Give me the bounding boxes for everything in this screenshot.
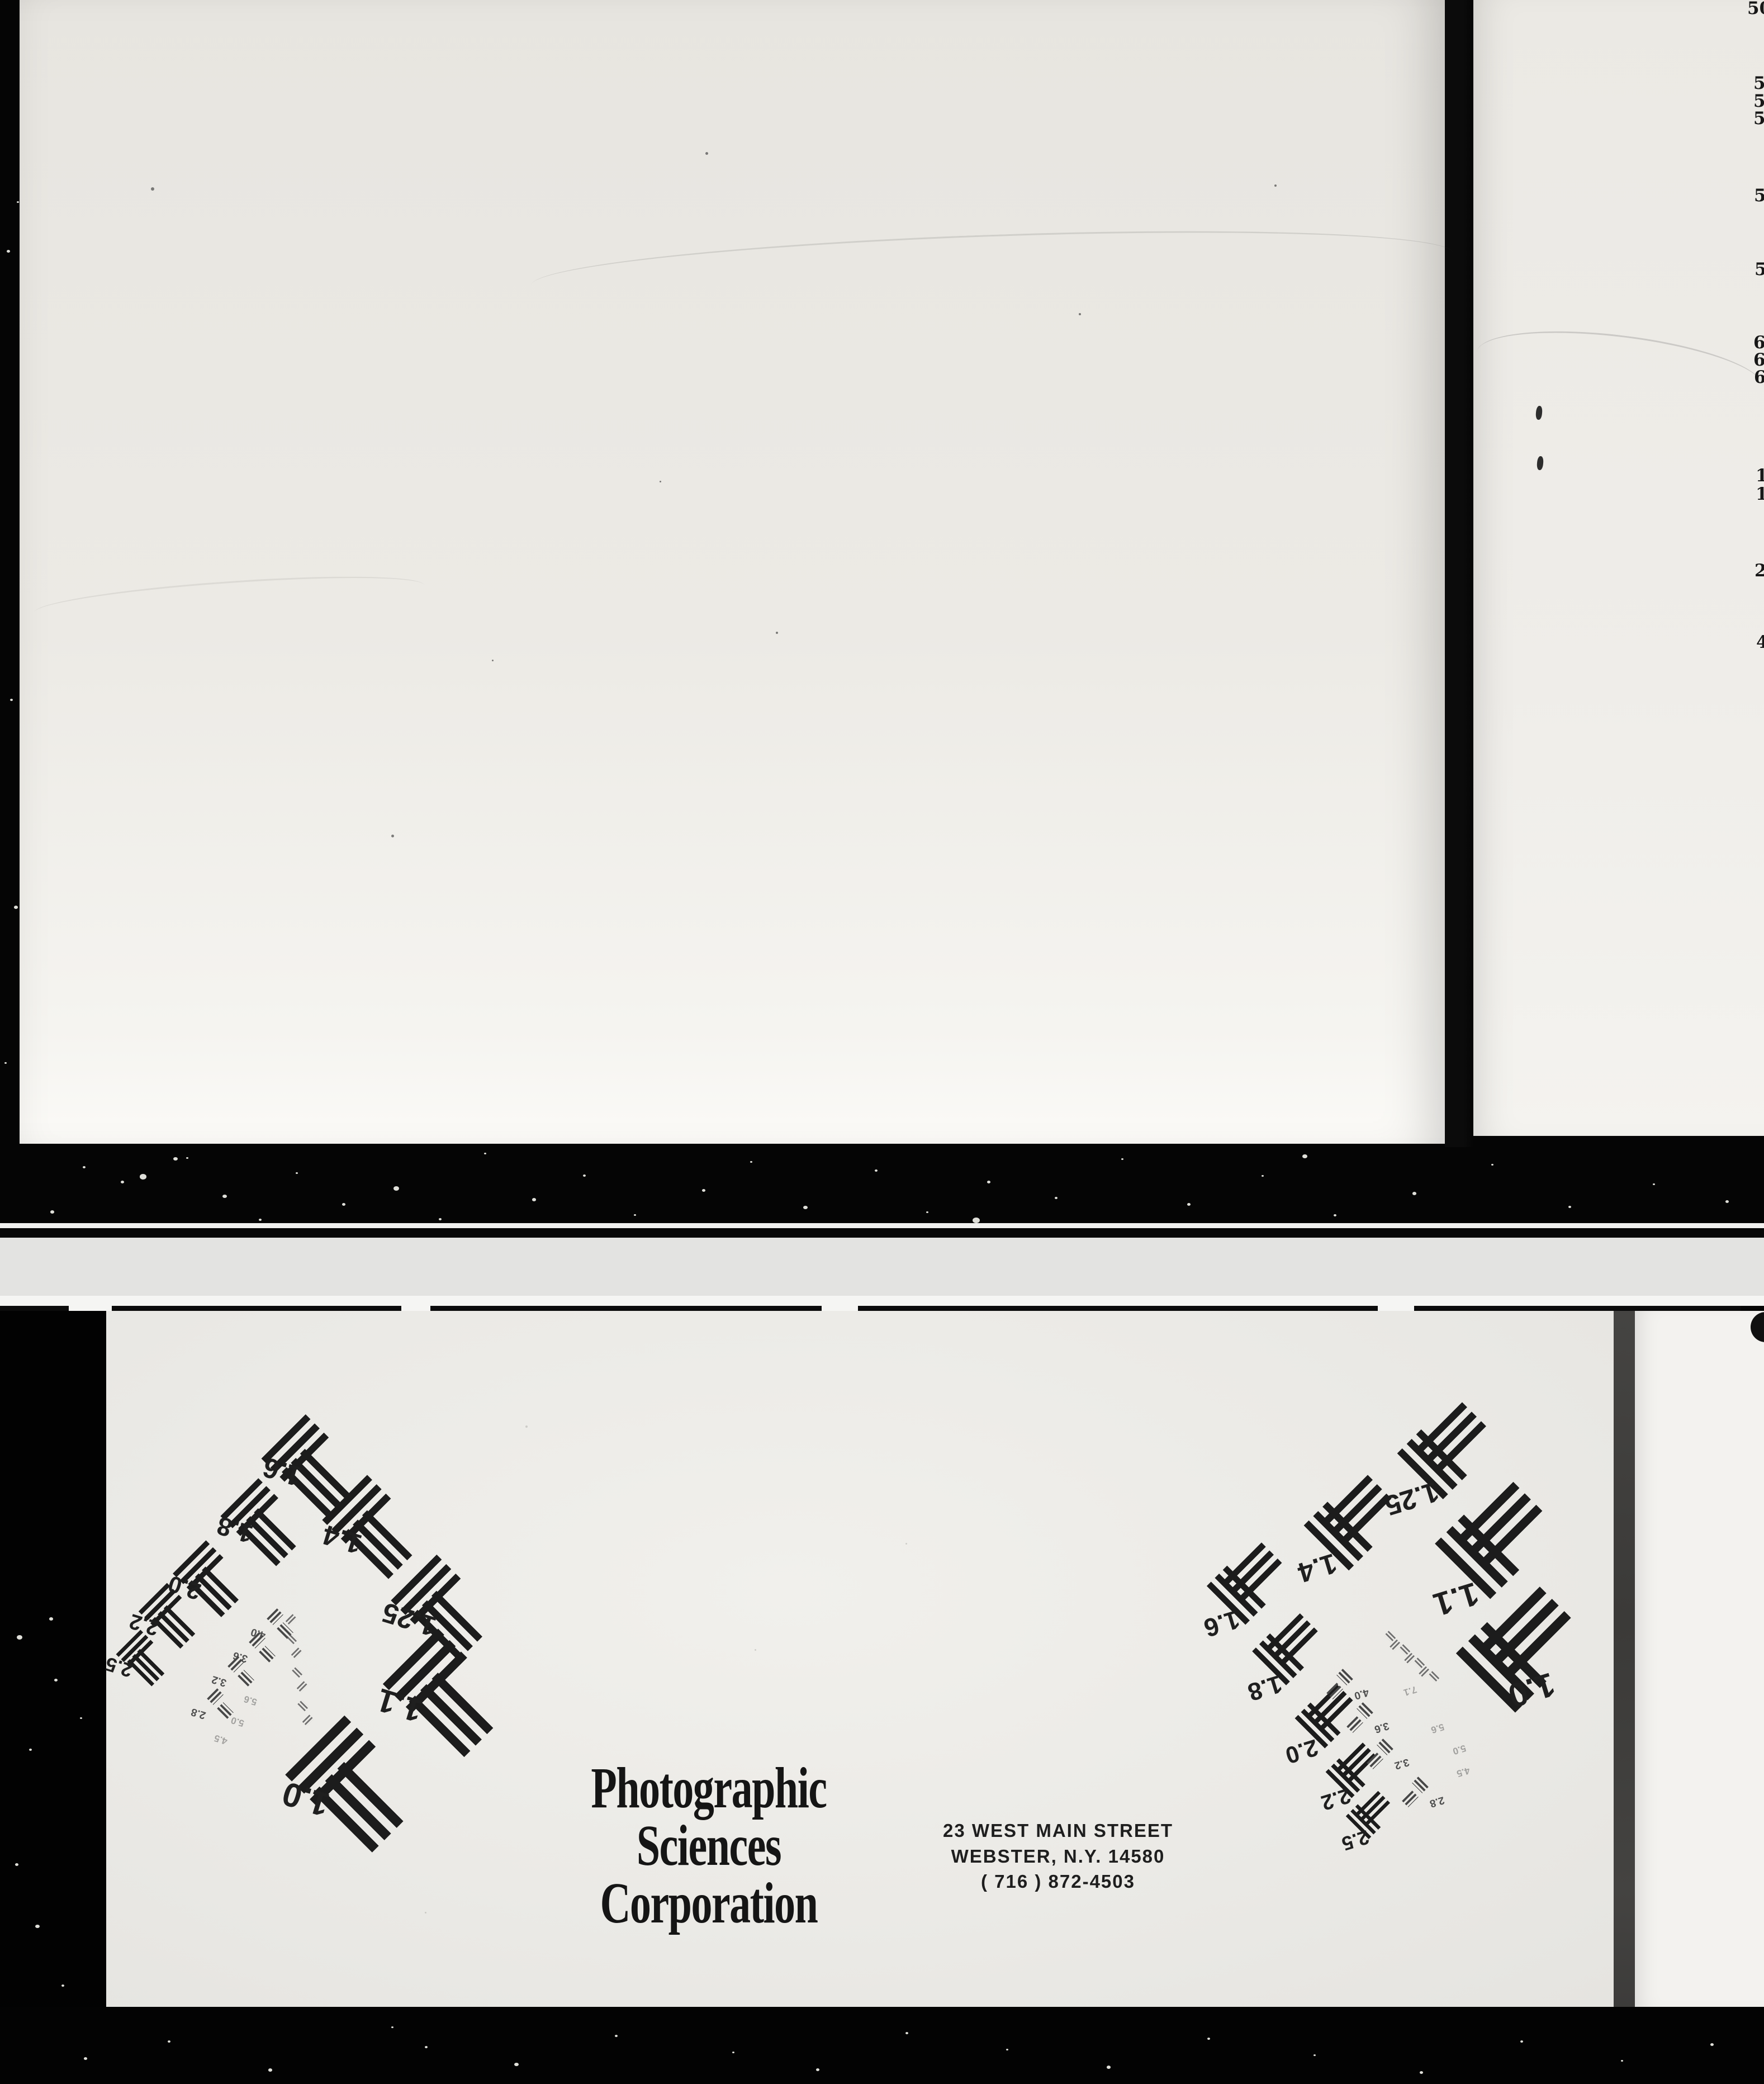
film-gap-white-band bbox=[0, 1296, 1764, 1306]
edge-page-numeral: 1 bbox=[1756, 486, 1764, 503]
film-dust-speck bbox=[1491, 1164, 1493, 1166]
dust-speck bbox=[1079, 313, 1081, 315]
edge-page-numeral: 5 bbox=[1754, 187, 1764, 205]
film-dust-speck bbox=[905, 2032, 908, 2034]
film-dust-speck bbox=[987, 1181, 990, 1183]
film-dust-speck bbox=[1725, 1200, 1729, 1203]
film-dust-speck bbox=[4, 1062, 7, 1064]
edge-page-numeral: 6 bbox=[1753, 334, 1764, 352]
frame-separator-white-line bbox=[0, 1223, 1764, 1228]
film-left-black-border bbox=[0, 1311, 106, 2084]
card-speck bbox=[425, 1912, 426, 1914]
card-speck bbox=[755, 1649, 756, 1651]
film-dust-speck bbox=[1302, 1154, 1307, 1158]
film-dust-speck bbox=[532, 1198, 536, 1201]
film-dust-speck bbox=[61, 1984, 64, 1987]
film-dust-speck bbox=[1653, 1183, 1655, 1185]
film-dust-speck bbox=[222, 1195, 227, 1198]
film-dust-speck bbox=[1121, 1158, 1123, 1160]
company-name-line: Corporation bbox=[525, 1875, 893, 1933]
book-gutter-shadow bbox=[1464, 0, 1473, 1147]
film-dust-speck bbox=[84, 2057, 87, 2060]
film-dust-speck bbox=[702, 1189, 705, 1192]
film-dust-speck bbox=[186, 1157, 188, 1159]
film-dust-speck bbox=[393, 1186, 399, 1191]
card-speck bbox=[525, 1425, 528, 1428]
top-right-partial-page bbox=[1473, 0, 1764, 1136]
dust-speck bbox=[705, 152, 708, 155]
film-dust-speck bbox=[17, 201, 19, 203]
company-name-line: Sciences bbox=[525, 1817, 893, 1875]
book-gutter-line bbox=[1445, 0, 1464, 1147]
film-dust-speck bbox=[973, 1218, 980, 1223]
frame-separator-black-band bbox=[0, 1228, 1764, 1238]
edge-page-numeral: 50 bbox=[1747, 0, 1764, 17]
dust-speck bbox=[492, 660, 494, 661]
film-dust-speck bbox=[1520, 2040, 1523, 2043]
film-dust-speck bbox=[1412, 1192, 1416, 1195]
film-dust-speck bbox=[17, 1635, 22, 1640]
edge-page-numeral: 2 bbox=[1754, 562, 1764, 580]
film-dust-speck bbox=[259, 1219, 262, 1221]
film-dust-speck bbox=[1187, 1203, 1191, 1206]
microfilm-scan-page: Photographic Sciences Corporation 23 WES… bbox=[0, 0, 1764, 2084]
film-dust-speck bbox=[816, 2068, 819, 2071]
film-dust-speck bbox=[140, 1174, 146, 1180]
film-dust-speck bbox=[750, 1161, 752, 1163]
film-dust-speck bbox=[1710, 2043, 1714, 2046]
company-name-block: Photographic Sciences Corporation bbox=[525, 1760, 893, 1933]
film-dust-speck bbox=[1055, 1197, 1058, 1199]
film-dust-speck bbox=[875, 1169, 878, 1172]
film-edge-dark-bar bbox=[1614, 1311, 1635, 2084]
film-dust-speck bbox=[121, 1181, 124, 1183]
edge-page-numeral: 5 bbox=[1753, 93, 1764, 110]
dust-speck bbox=[151, 187, 154, 191]
top-left-blank-page bbox=[20, 0, 1445, 1144]
film-dust-speck bbox=[54, 1679, 58, 1682]
film-dust-speck bbox=[168, 2040, 170, 2043]
dust-speck bbox=[660, 481, 661, 482]
film-dust-speck bbox=[268, 2068, 272, 2072]
film-dust-speck bbox=[1568, 1206, 1571, 1208]
frame-divider-rule bbox=[0, 1306, 1741, 1311]
film-dust-speck bbox=[1334, 1214, 1336, 1216]
company-address-block: 23 WEST MAIN STREET WEBSTER, N.Y. 14580 … bbox=[890, 1818, 1226, 1894]
edge-page-numeral: 5 bbox=[1753, 75, 1764, 92]
film-dust-speck bbox=[7, 250, 10, 253]
film-dust-speck bbox=[14, 906, 18, 909]
film-dust-speck bbox=[615, 2035, 618, 2037]
film-dust-speck bbox=[15, 1863, 18, 1866]
card-speck bbox=[1146, 1856, 1148, 1858]
film-gap-gray-band bbox=[0, 1238, 1764, 1296]
dust-speck bbox=[776, 632, 778, 634]
film-dust-speck bbox=[83, 1166, 86, 1168]
film-dust-speck bbox=[803, 1206, 808, 1209]
film-dust-speck bbox=[634, 1214, 636, 1216]
company-name-line: Photographic bbox=[525, 1760, 893, 1817]
film-dust-speck bbox=[50, 1210, 54, 1214]
film-bottom-black-border bbox=[0, 2007, 1764, 2084]
edge-page-numeral: 6 bbox=[1753, 352, 1764, 369]
film-dust-speck bbox=[1107, 2066, 1111, 2069]
address-city: WEBSTER, N.Y. 14580 bbox=[890, 1844, 1226, 1869]
film-dust-speck bbox=[173, 1157, 178, 1161]
film-dust-speck bbox=[342, 1203, 345, 1206]
film-dust-speck bbox=[1262, 1175, 1264, 1177]
film-dust-speck bbox=[49, 1617, 53, 1621]
film-dust-speck bbox=[1207, 2038, 1210, 2040]
edge-page-numeral: 1 bbox=[1756, 467, 1764, 485]
edge-page-numeral: 5 bbox=[1754, 261, 1764, 278]
edge-page-numeral: 5 bbox=[1753, 110, 1764, 127]
film-dust-speck bbox=[926, 1211, 928, 1213]
address-street: 23 WEST MAIN STREET bbox=[890, 1818, 1226, 1844]
adjacent-card-strip bbox=[1635, 1311, 1764, 2007]
card-speck bbox=[905, 1543, 907, 1545]
film-dust-speck bbox=[296, 1172, 298, 1174]
film-dust-speck bbox=[439, 1218, 442, 1220]
dust-speck bbox=[1274, 184, 1277, 187]
film-dust-speck bbox=[29, 1749, 32, 1751]
address-phone: ( 716 ) 872-4503 bbox=[890, 1869, 1226, 1894]
film-dust-speck bbox=[1420, 2071, 1423, 2074]
edge-page-numeral: 6 bbox=[1754, 369, 1764, 386]
edge-page-numeral: 4 bbox=[1756, 634, 1764, 651]
film-dust-speck bbox=[10, 699, 13, 701]
film-dust-speck bbox=[425, 2046, 428, 2048]
dust-speck bbox=[391, 835, 394, 837]
film-dust-speck bbox=[484, 1153, 486, 1154]
film-dust-speck bbox=[583, 1174, 586, 1177]
